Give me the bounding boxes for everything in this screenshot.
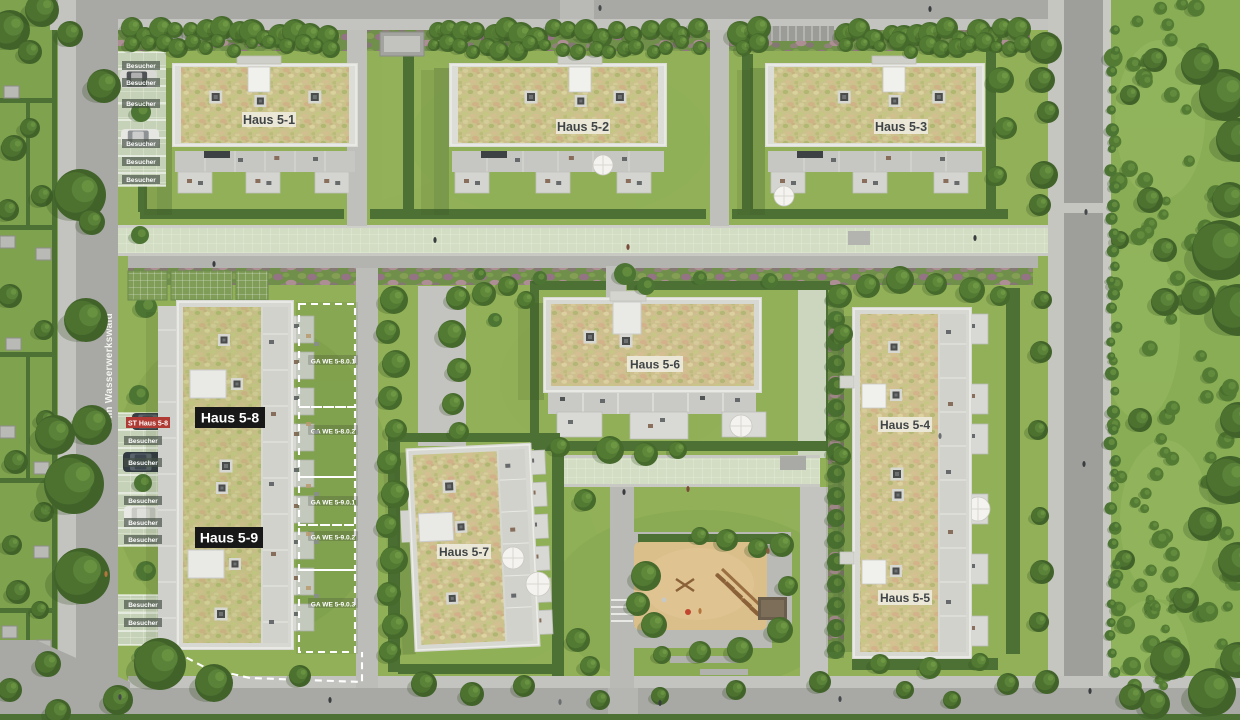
svg-text:ST Haus 5-8: ST Haus 5-8	[128, 421, 168, 428]
svg-text:Besucher: Besucher	[128, 602, 158, 609]
svg-text:Besucher: Besucher	[128, 460, 158, 467]
svg-text:Besucher: Besucher	[126, 141, 156, 148]
svg-text:Besucher: Besucher	[128, 438, 158, 445]
svg-text:Haus 5-1: Haus 5-1	[243, 113, 295, 127]
svg-text:Haus 5-7: Haus 5-7	[439, 545, 489, 559]
svg-text:Haus 5-4: Haus 5-4	[880, 418, 930, 432]
svg-text:Besucher: Besucher	[126, 80, 156, 87]
svg-text:Haus 5-5: Haus 5-5	[880, 591, 930, 605]
svg-text:Besucher: Besucher	[128, 498, 158, 505]
svg-text:Haus 5-2: Haus 5-2	[557, 120, 609, 134]
svg-text:Haus 5-8: Haus 5-8	[201, 410, 260, 426]
svg-text:Besucher: Besucher	[126, 63, 156, 70]
svg-text:Haus 5-3: Haus 5-3	[875, 120, 927, 134]
svg-text:Haus 5-9: Haus 5-9	[200, 530, 259, 546]
svg-text:Besucher: Besucher	[128, 520, 158, 527]
svg-text:GA WE 5-8.0.1: GA WE 5-8.0.1	[311, 359, 356, 366]
svg-text:GA WE 5-9.0.1: GA WE 5-9.0.1	[311, 500, 356, 507]
svg-text:Besucher: Besucher	[126, 159, 156, 166]
svg-text:GA WE 5-9.0.3: GA WE 5-9.0.3	[311, 602, 356, 609]
svg-text:Besucher: Besucher	[126, 177, 156, 184]
svg-text:Besucher: Besucher	[126, 101, 156, 108]
svg-text:Besucher: Besucher	[128, 620, 158, 627]
svg-text:Haus 5-6: Haus 5-6	[630, 357, 680, 371]
svg-text:Besucher: Besucher	[128, 537, 158, 544]
